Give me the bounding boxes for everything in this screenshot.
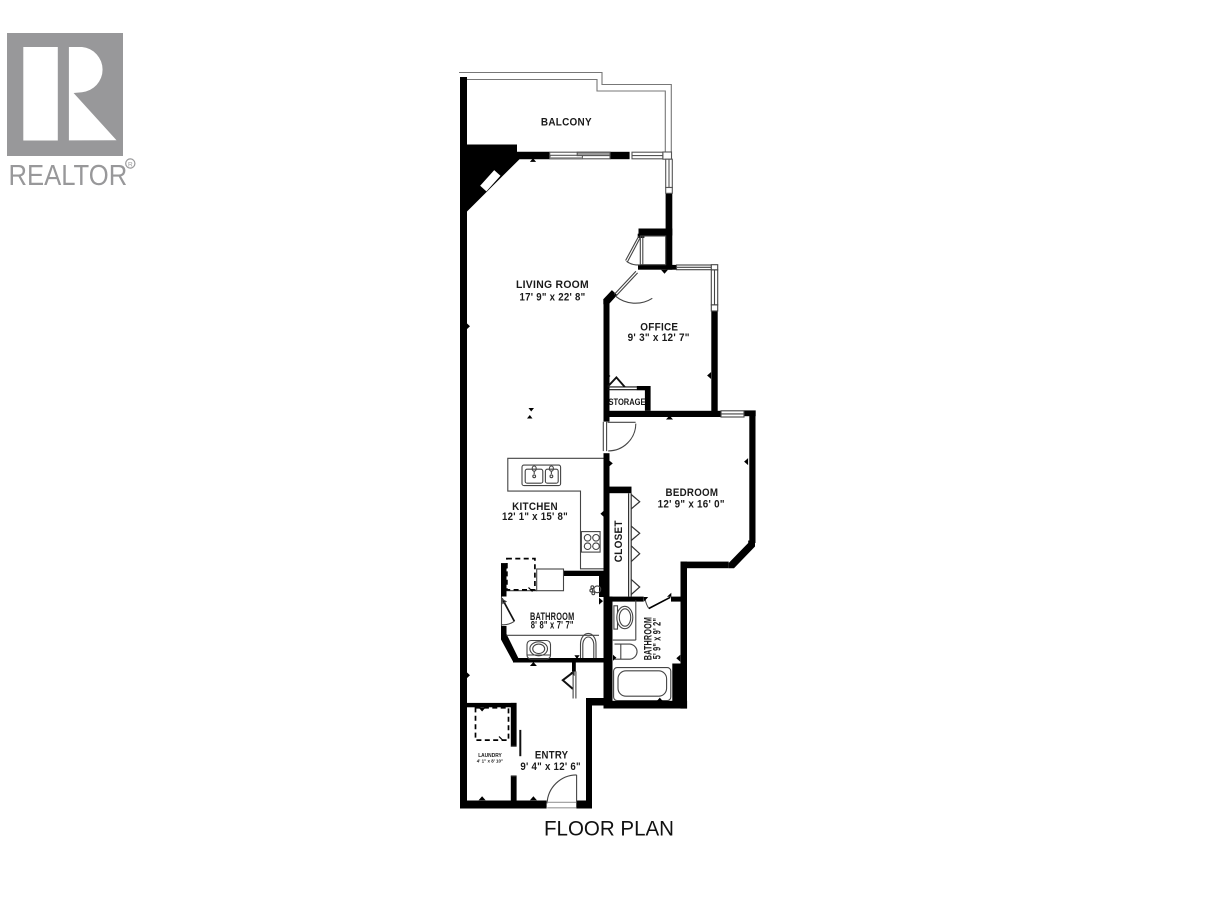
svg-text:BEDROOM: BEDROOM: [666, 487, 719, 499]
svg-text:CLOSET: CLOSET: [613, 520, 625, 562]
svg-text:17' 9" x 22' 8": 17' 9" x 22' 8": [520, 292, 586, 304]
svg-text:9' 4" x 12' 6": 9' 4" x 12' 6": [520, 761, 581, 773]
svg-text:STORAGE: STORAGE: [609, 397, 646, 407]
svg-text:4' 1" x 8' 10": 4' 1" x 8' 10": [477, 759, 503, 764]
svg-text:R: R: [128, 162, 133, 169]
svg-text:FLOOR PLAN: FLOOR PLAN: [544, 817, 674, 841]
svg-text:9' 3" x 12' 7": 9' 3" x 12' 7": [628, 332, 690, 344]
svg-text:8' 8" x 7' 7": 8' 8" x 7' 7": [531, 619, 574, 631]
svg-text:12' 1" x 15' 8": 12' 1" x 15' 8": [502, 511, 568, 523]
svg-text:5' 9" x 9' 2": 5' 9" x 9' 2": [651, 618, 663, 659]
svg-text:ENTRY: ENTRY: [535, 749, 569, 761]
svg-text:LIVING ROOM: LIVING ROOM: [516, 279, 589, 291]
svg-text:12' 9" x 16' 0": 12' 9" x 16' 0": [658, 498, 725, 510]
svg-text:REALTOR: REALTOR: [9, 160, 128, 192]
svg-text:BALCONY: BALCONY: [541, 116, 592, 128]
